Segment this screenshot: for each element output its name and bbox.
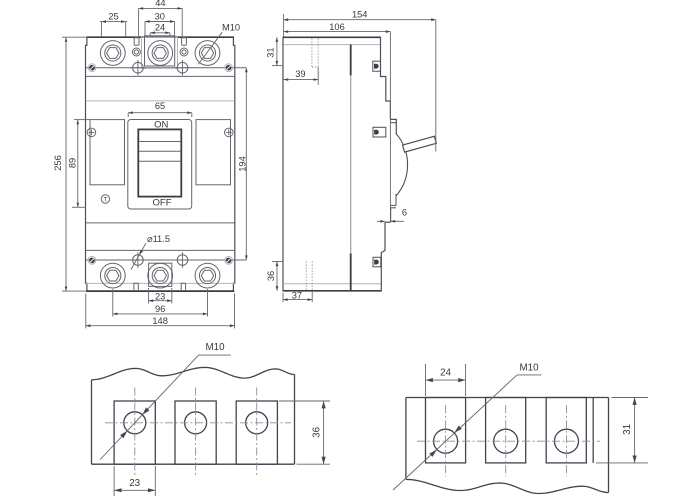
svg-text:31: 31 — [622, 424, 633, 435]
svg-text:23: 23 — [129, 478, 140, 489]
svg-text:23: 23 — [155, 291, 165, 301]
svg-text:39: 39 — [295, 69, 305, 79]
svg-text:65: 65 — [155, 101, 165, 111]
svg-text:M10: M10 — [205, 342, 225, 353]
svg-text:6: 6 — [402, 208, 407, 218]
svg-text:36: 36 — [266, 271, 276, 281]
svg-text:24: 24 — [155, 23, 165, 33]
svg-text:OFF: OFF — [153, 197, 172, 208]
svg-text:⌀11.5: ⌀11.5 — [147, 234, 170, 244]
svg-text:96: 96 — [155, 304, 165, 314]
svg-text:154: 154 — [352, 9, 368, 19]
svg-text:24: 24 — [440, 367, 451, 378]
svg-text:44: 44 — [155, 0, 165, 8]
svg-text:106: 106 — [329, 22, 345, 32]
svg-text:194: 194 — [238, 156, 248, 172]
svg-text:M10: M10 — [222, 23, 240, 33]
svg-text:36: 36 — [311, 426, 322, 437]
svg-text:256: 256 — [53, 155, 63, 171]
svg-text:31: 31 — [266, 47, 276, 57]
svg-text:30: 30 — [155, 11, 165, 21]
svg-text:T: T — [104, 198, 108, 204]
svg-text:148: 148 — [152, 316, 168, 326]
svg-text:89: 89 — [68, 158, 78, 168]
svg-text:M10: M10 — [519, 363, 539, 374]
svg-text:25: 25 — [108, 11, 118, 21]
svg-text:ON: ON — [154, 120, 168, 131]
svg-text:37: 37 — [292, 290, 302, 300]
